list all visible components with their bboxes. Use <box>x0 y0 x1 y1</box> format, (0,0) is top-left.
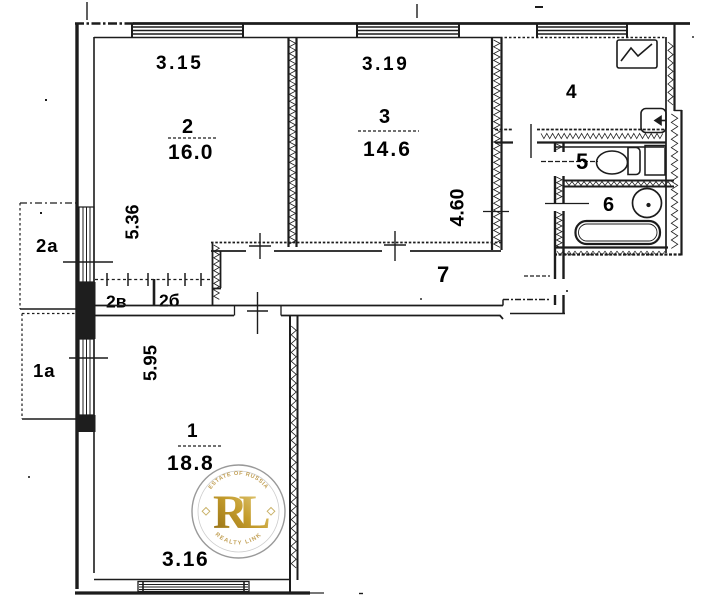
svg-text:RL: RL <box>213 486 269 539</box>
svg-text:18.8: 18.8 <box>167 452 214 475</box>
svg-text:2в: 2в <box>106 292 127 312</box>
svg-text:1а: 1а <box>33 360 56 381</box>
svg-text:3: 3 <box>379 106 390 128</box>
svg-text:4: 4 <box>566 82 577 103</box>
svg-text:5.95: 5.95 <box>139 345 160 381</box>
svg-text:16.0: 16.0 <box>168 141 214 164</box>
svg-text:5.36: 5.36 <box>122 204 142 239</box>
svg-text:3.15: 3.15 <box>156 53 203 74</box>
svg-text:3.19: 3.19 <box>362 54 409 75</box>
svg-text:6: 6 <box>603 194 614 216</box>
svg-text:14.6: 14.6 <box>363 138 412 161</box>
svg-text:2а: 2а <box>36 235 59 256</box>
svg-text:2б: 2б <box>159 291 180 311</box>
svg-text:1: 1 <box>187 421 198 442</box>
svg-text:7: 7 <box>437 262 449 287</box>
svg-text:4.60: 4.60 <box>447 188 469 226</box>
svg-text:3.16: 3.16 <box>162 548 209 571</box>
svg-text:2: 2 <box>182 116 193 138</box>
svg-text:5: 5 <box>576 149 588 174</box>
